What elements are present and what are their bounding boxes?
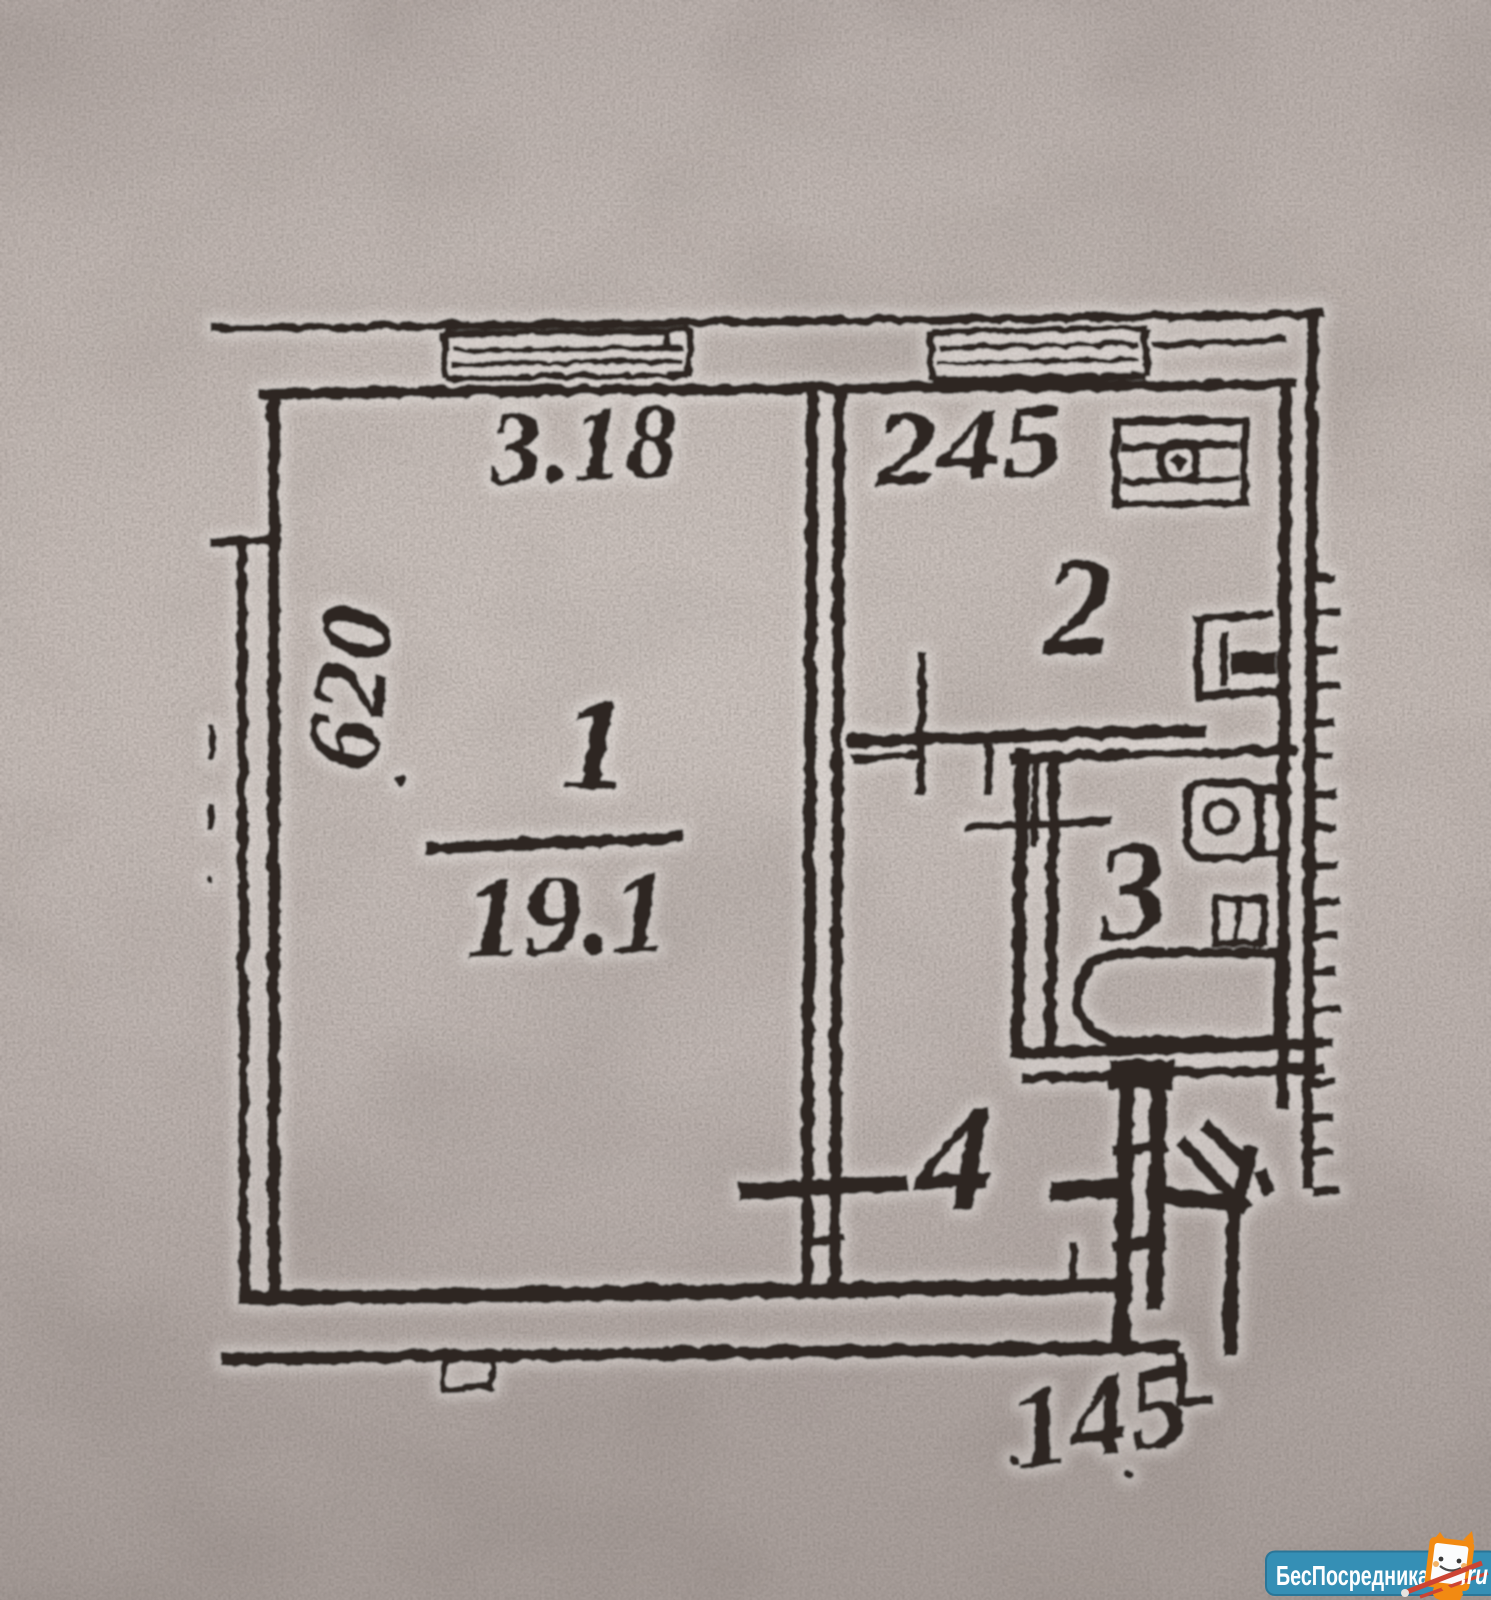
svg-text:145: 145 xyxy=(998,1336,1195,1494)
svg-text:1: 1 xyxy=(560,668,628,817)
svg-text:.ru: .ru xyxy=(1461,1559,1488,1590)
svg-text:4: 4 xyxy=(912,1070,993,1242)
svg-text:245: 245 xyxy=(867,380,1065,508)
svg-text:19.1: 19.1 xyxy=(460,844,671,982)
svg-text:620: 620 xyxy=(280,597,416,775)
svg-text:2: 2 xyxy=(1040,528,1112,683)
svg-text:3.18: 3.18 xyxy=(484,381,681,506)
svg-text:БесПосредника: БесПосредника xyxy=(1276,1560,1429,1591)
